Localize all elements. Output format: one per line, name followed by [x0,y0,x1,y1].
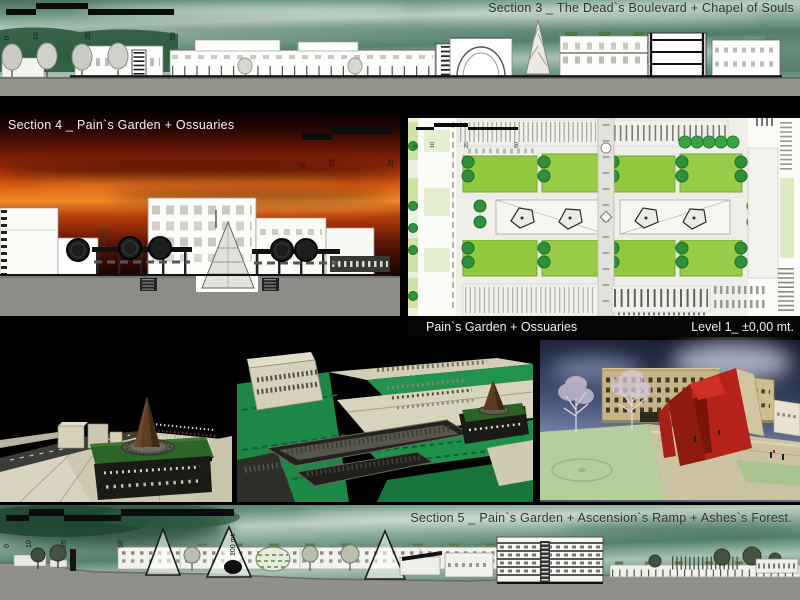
scale-label: 25 [85,14,92,40]
chapel-tree [526,20,550,74]
black-monolith [70,549,76,571]
scale-label: 25 [388,141,395,167]
scale-segment [36,3,88,9]
section5-title: Section 5 _ Pain`s Garden + Ascension`s … [410,511,792,525]
scale-label: 50 [170,14,177,40]
scale-segment [6,515,29,521]
section4-title: Section 4 _ Pain`s Garden + Ossuaries [8,118,234,132]
render-ascension-ramp [540,340,800,502]
scale-label: 0 [414,130,420,148]
scale-label: 0 [4,14,11,40]
chapel-building [90,396,214,500]
central-spine [598,118,614,316]
scale-label: 10 [26,522,33,548]
scale-segment [121,509,234,516]
midrise-section-building [497,537,603,584]
north-trees-row [679,136,739,148]
render-chapel-model [0,340,232,502]
scale-segment [29,509,64,516]
scale-label: 50 [118,522,125,548]
presentation-board: 0 10 25 50 Section 3 _ The Dead`s Boulev… [0,0,800,600]
scale-label: 25 [61,522,68,548]
scale-label: 25 [465,130,471,148]
scale-segment [434,123,468,127]
section3-scalebar: 0 10 25 50 [6,2,178,38]
scale-label: 50 [515,130,521,148]
arch-hall [450,38,512,77]
scale-label: 10 [33,14,40,40]
scale-label: 10 [329,141,336,167]
plan-caption-right: Level 1_ ±0,00 mt. [691,320,794,334]
colonnade-building [170,40,435,77]
green-dome [256,547,290,571]
render2-image [237,340,533,502]
site-plan-panel: 0 10 25 50 [408,118,800,316]
section3-title: Section 3 _ The Dead`s Boulevard + Chape… [488,1,794,15]
left-building [247,352,323,410]
render3-image [540,340,800,502]
plan-scalebar: 0 10 25 50 [416,122,526,146]
section4-panel: 0 10 25 Section 4 _ Pain`s Garden + Ossu… [0,110,400,316]
section5-scalebar: 0 10 25 50 100 mt. [6,507,241,547]
ossuary-buildings [0,198,390,276]
scale-label: 0 [300,141,307,167]
scale-segment [332,126,392,134]
scale-label: 10 [431,130,437,148]
ramp-blob [224,560,242,574]
scale-segment [468,127,518,130]
section5-panel: 0 10 25 50 100 mt. Section 5 _ Pain`s Ga… [0,505,800,600]
render-aerial-model [237,340,533,502]
far-east-structures [756,559,798,573]
scale-label: 0 [4,522,11,548]
section-cut-blocks [648,33,780,77]
plan-caption-strip: Pain`s Garden + Ossuaries Level 1_ ±0,00… [408,316,800,337]
render1-image [0,340,232,502]
scale-segment [302,133,332,140]
scale-segment [64,515,121,521]
scale-label: 100 mt. [230,522,237,556]
section3-panel: 0 10 25 50 Section 3 _ The Dead`s Boulev… [0,0,800,96]
plan-caption-left: Pain`s Garden + Ossuaries [426,320,577,334]
section4-scalebar: 0 10 25 [302,124,398,160]
scale-segment [88,9,174,15]
